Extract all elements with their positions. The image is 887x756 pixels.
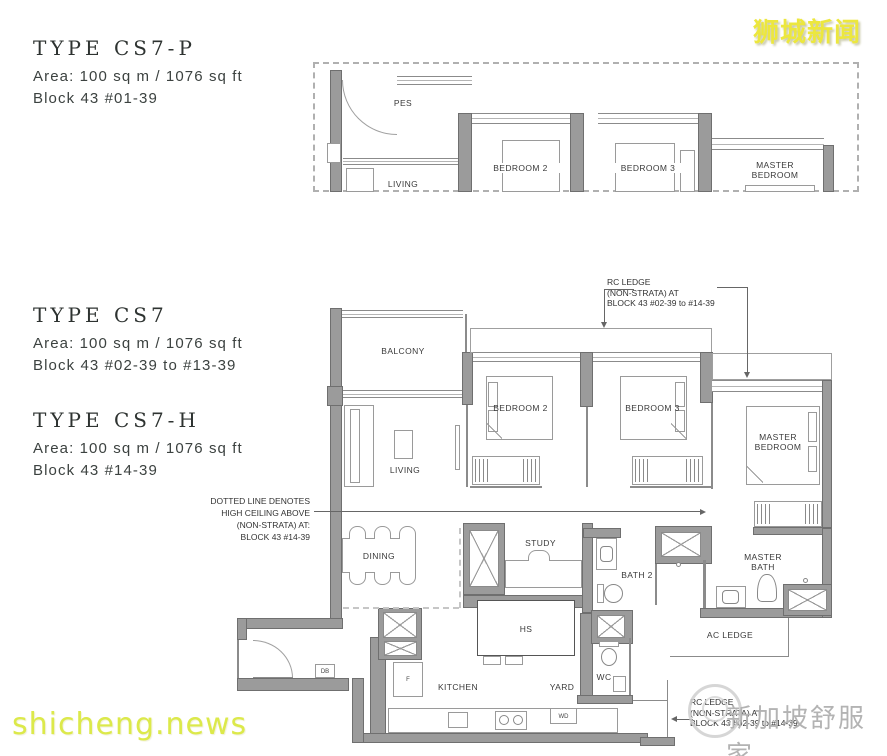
master-line2: BEDROOM (755, 442, 802, 452)
fridge: F (393, 662, 423, 697)
unit-type-title: TYPE CS7-P (33, 36, 243, 60)
living-tv-console (455, 425, 460, 470)
entrance-door-arc-icon (253, 640, 293, 678)
room-label-master-bath: MASTERBATH (733, 552, 793, 572)
leader-line (604, 289, 605, 322)
bedroom3-bed-fold (671, 423, 686, 439)
unit-type-title: TYPE CS7 (33, 303, 243, 327)
entrance-bottom-wall (237, 678, 349, 691)
ac-ledge-line-horizontal (670, 656, 789, 657)
leader-arrow-left-icon (671, 716, 677, 722)
masterbath-toilet (757, 574, 777, 602)
bedroom3-wardrobe-hatch (635, 459, 649, 482)
unit-type-block: Block 43 #02-39 to #13-39 (33, 355, 243, 377)
shower-xbox (788, 589, 827, 611)
entrance-left-wall (237, 640, 239, 680)
bedroom2-bed-fold (487, 423, 502, 439)
note-line: HIGH CEILING ABOVE (160, 507, 310, 519)
upper-wall-fixture (327, 143, 341, 163)
high-ceiling-dashed-horizontal (343, 607, 459, 609)
washer-dryer: WD (550, 708, 577, 724)
upper-room-label-bedroom3: BEDROOM 3 (608, 163, 688, 173)
living-bedroom2-wall (466, 405, 468, 487)
wc-right-wall (629, 638, 631, 698)
upper-post-bed2-bed3 (570, 113, 584, 192)
study-desk (505, 560, 582, 588)
watermark-top-right: 狮城新闻 (753, 12, 861, 49)
masterbath-basin (722, 590, 739, 604)
dining-chair (349, 526, 366, 539)
unit-type-block: Block 43 #01-39 (33, 88, 243, 110)
upper-pes-top-wall (397, 76, 472, 85)
wc-toilet-tank (599, 641, 619, 647)
hs-door-mark (483, 656, 501, 665)
watermark-bottom-right: 新加坡舒服家 (726, 698, 887, 756)
unit-type-title: TYPE CS7-H (33, 408, 243, 432)
rc-ledge-strip-master (712, 353, 832, 380)
note-line: BLOCK 43 #02-39 to #14-39 (607, 298, 747, 309)
main-left-wall (330, 308, 342, 623)
upper-master-window (712, 138, 824, 150)
sink-basin-icon (513, 715, 523, 725)
floor-plan-page: TYPE CS7-P Area: 100 sq m / 1076 sq ft B… (0, 0, 887, 756)
study-chair (528, 550, 550, 561)
master-wardrobe-hatch (805, 504, 819, 524)
bedroom3-bottom-wall (630, 486, 713, 488)
kitchen-shaft-xbox-1 (383, 612, 417, 638)
room-label-balcony: BALCONY (363, 346, 443, 356)
bedroom2-window (473, 352, 581, 362)
dining-chair (349, 572, 366, 585)
bedroom-divider-wall (586, 407, 588, 487)
rc-ledge-bottom-wall (640, 737, 675, 746)
room-label-hs: HS (477, 624, 575, 634)
upper-post-bed3-master (698, 113, 712, 192)
unit-type-cs7h: TYPE CS7-H Area: 100 sq m / 1076 sq ft B… (33, 408, 243, 482)
bedroom3-window (593, 352, 701, 362)
upper-room-label-pes: PES (373, 98, 433, 108)
balcony-parapet (343, 390, 463, 398)
leader-line (604, 289, 634, 290)
unit-type-cs7p: TYPE CS7-P Area: 100 sq m / 1076 sq ft B… (33, 36, 243, 110)
unit-type-area: Area: 100 sq m / 1076 sq ft (33, 66, 243, 88)
room-label-dining: DINING (342, 551, 416, 561)
dining-chair (374, 572, 391, 585)
upper-room-label-bedroom2: BEDROOM 2 (478, 163, 563, 173)
note-high-ceiling: DOTTED LINE DENOTES HIGH CEILING ABOVE (… (160, 495, 310, 543)
bedroom2-bottom-wall (470, 486, 542, 488)
master-bedroom-bottom-wall (753, 527, 832, 535)
unit-type-cs7: TYPE CS7 Area: 100 sq m / 1076 sq ft Blo… (33, 303, 243, 377)
rc-ledge-strip-bedrooms (470, 328, 712, 353)
leader-line (314, 511, 700, 512)
upper-room-label-living: LIVING (373, 179, 433, 189)
upper-master-line1: MASTER (756, 160, 794, 170)
high-ceiling-dashed-vertical (459, 528, 461, 608)
note-line: (NON-STRATA) AT: (160, 519, 310, 531)
db-label: DB (316, 669, 334, 675)
upper-room-label-master: MASTERBEDROOM (735, 160, 815, 180)
upper-bedroom2-window (472, 113, 570, 124)
master-bath-line2: BATH (751, 562, 775, 572)
bedroom3-master-wall (711, 403, 713, 489)
master-wardrobe-hatch (757, 504, 771, 524)
upper-living-sofa (346, 168, 374, 192)
wc-shaft-xbox (597, 615, 625, 638)
ac-ledge-line-vertical (788, 618, 789, 657)
fridge-label: F (394, 677, 422, 683)
room-label-bedroom3: BEDROOM 3 (610, 403, 695, 413)
leader-arrow-down-icon (744, 372, 750, 378)
master-bedroom-window (712, 380, 822, 392)
upper-post-pes-right (458, 113, 472, 192)
tap-icon (803, 578, 808, 583)
unit-type-area: Area: 100 sq m / 1076 sq ft (33, 333, 243, 355)
note-line: BLOCK 43 #14-39 (160, 531, 310, 543)
bath2-toilet-tank (597, 584, 604, 603)
living-coffee-table (394, 430, 413, 459)
balcony-left-post (327, 386, 343, 406)
rc-ledge-line-vertical (667, 680, 668, 737)
bedroom2-wardrobe-hatch (475, 459, 489, 482)
bath2-basin (600, 546, 613, 562)
master-line1: MASTER (759, 432, 797, 442)
dining-chair (374, 526, 391, 539)
master-bed-fold (747, 466, 763, 483)
master-bedroom-right-wall (822, 380, 832, 533)
post-bedroom2-bedroom3 (580, 352, 593, 407)
living-sofa-cushions (350, 409, 360, 483)
kitchen-bottom-wall (363, 733, 648, 743)
tap-icon (676, 562, 681, 567)
bath2-toilet-bowl (604, 584, 623, 603)
kitchen-hob (448, 712, 468, 728)
leader-line (717, 287, 747, 288)
entrance-top-wall (237, 618, 343, 629)
rc-ledge-line-horizontal (633, 700, 667, 701)
watermark-bottom-left: shicheng.news (12, 707, 247, 742)
bath2-top-wall (583, 528, 621, 538)
room-label-study: STUDY (508, 538, 573, 548)
sink-basin-icon (499, 715, 509, 725)
db-box: DB (315, 664, 335, 678)
dining-chair (399, 526, 416, 539)
upper-pes-bottom-wall (343, 158, 458, 165)
room-label-ac-ledge: AC LEDGE (695, 630, 765, 640)
upper-master-right-wall (823, 145, 834, 192)
washer-dryer-label: WD (551, 714, 576, 720)
bedroom2-wardrobe-hatch (523, 459, 537, 482)
master-bath-line1: MASTER (744, 552, 782, 562)
leader-arrow-right-icon (700, 509, 706, 515)
dining-chair (399, 572, 416, 585)
leader-arrow-down-icon (601, 322, 607, 328)
room-label-master-bedroom: MASTERBEDROOM (738, 432, 818, 452)
note-line: RC LEDGE (607, 277, 747, 288)
unit-type-block: Block 43 #14-39 (33, 460, 243, 482)
note-line: DOTTED LINE DENOTES (160, 495, 310, 507)
bedroom3-wardrobe-hatch (686, 459, 700, 482)
leader-line (747, 287, 748, 372)
study-shaft-xbox (469, 530, 499, 587)
upper-pes-left-wall (330, 70, 342, 192)
room-label-kitchen: KITCHEN (428, 682, 488, 692)
upper-master-bed (745, 185, 815, 192)
masterbath-shaft-xbox (661, 532, 701, 557)
room-label-wc: WC (590, 672, 618, 682)
room-label-yard: YARD (538, 682, 586, 692)
unit-type-area: Area: 100 sq m / 1076 sq ft (33, 438, 243, 460)
room-label-living: LIVING (365, 465, 445, 475)
entrance-door-leaf (253, 677, 293, 678)
note-rc-ledge-top: RC LEDGE (NON-STRATA) AT BLOCK 43 #02-39… (607, 277, 747, 309)
upper-bedroom3-window (598, 113, 698, 124)
balcony-top-wall (342, 310, 463, 318)
watermark-logo-inner-icon (702, 696, 728, 722)
wc-toilet-bowl (601, 648, 617, 666)
upper-master-line2: BEDROOM (752, 170, 799, 180)
wc-bottom-wall (577, 695, 633, 704)
post-balcony-bedroom2 (462, 352, 473, 405)
entrance-left-post (237, 618, 247, 640)
hs-door-mark (505, 656, 523, 665)
room-label-bath2: BATH 2 (608, 570, 666, 580)
room-label-bedroom2: BEDROOM 2 (478, 403, 563, 413)
kitchen-shaft-xbox-2 (384, 641, 417, 656)
masterbath-left-wall (703, 560, 706, 610)
